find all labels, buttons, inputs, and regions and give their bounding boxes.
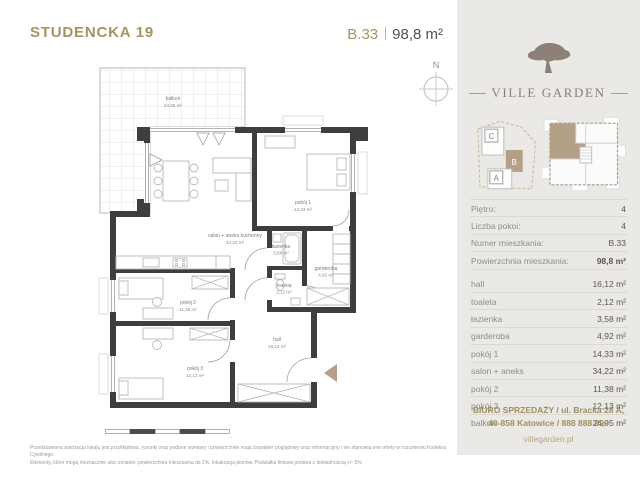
scale-segment — [205, 429, 230, 434]
room-area-pokoj3: 12,13 m² — [186, 373, 205, 378]
scale-segment — [180, 429, 205, 434]
room-area-pokoj2: 11,38 m² — [179, 307, 197, 312]
room-label-salon: salon + aneks kuchenny — [208, 233, 262, 239]
info-label: Numer mieszkania: — [471, 238, 544, 248]
room-label-pokoj3: pokój 3 — [187, 366, 203, 372]
disclaimer-line-1: Przedstawiona aranżacja lokalu jest przy… — [30, 445, 454, 460]
room-area-pokoj1: 14,33 m² — [294, 207, 313, 212]
site-building-c-label: C — [488, 132, 494, 141]
unit-header-divider — [385, 27, 386, 40]
scale-segment — [155, 429, 180, 434]
room-area-salon: 34,22 m² — [226, 240, 245, 245]
room-label-pokoj1: pokój 1 — [295, 200, 311, 206]
compass-icon — [418, 71, 454, 107]
room-row: hall 16,12 m² — [470, 276, 627, 293]
room-row: salon + aneks 34,22 m² — [470, 363, 627, 380]
unit-area: 98,8 m² — [392, 26, 443, 43]
compass-north-label: N — [418, 60, 454, 70]
unit-details: Piętro: 4 Liczba pokoi: 4 Numer mieszkan… — [470, 199, 627, 431]
unit-number: B.33 — [347, 26, 378, 43]
info-value: B.33 — [609, 238, 627, 248]
floor-plan: balkon 24,95 m² salon + aneks kuchenny 3… — [85, 58, 385, 428]
room-row-value: 4,92 m² — [597, 331, 626, 341]
brand-logo: VILLE GARDEN — [457, 0, 640, 101]
room-row-label: łazienka — [471, 314, 502, 324]
room-row-label: salon + aneks — [471, 366, 524, 376]
site-building-a-label: A — [494, 174, 500, 183]
room-row-label: hall — [471, 279, 484, 289]
brand-rule-left — [469, 93, 486, 94]
room-row-value: 3,58 m² — [597, 314, 626, 324]
room-row: łazienka 3,58 m² — [470, 310, 627, 327]
info-row: Powierzchnia mieszkania: 98,8 m² — [470, 252, 627, 269]
room-label-toaleta: toaleta — [276, 283, 291, 289]
scale-segment — [105, 429, 130, 434]
info-value: 4 — [621, 204, 626, 214]
room-row-label: garderoba — [471, 331, 510, 341]
room-row-value: 34,22 m² — [592, 366, 626, 376]
apartment-card-page: STUDENCKA 19 B.3398,8 m² N — [0, 0, 640, 480]
info-row: Piętro: 4 — [470, 200, 627, 217]
room-row: pokój 1 14,33 m² — [470, 345, 627, 362]
room-label-balkon: balkon — [166, 96, 181, 102]
room-label-lazienka: łazienka — [272, 244, 291, 250]
unit-info-table: Piętro: 4 Liczba pokoi: 4 Numer mieszkan… — [470, 199, 627, 270]
brand-name: VILLE GARDEN — [486, 85, 610, 101]
site-building-b-label: B — [512, 158, 517, 167]
brand-rule-right — [611, 93, 628, 94]
room-row-value: 16,12 m² — [592, 279, 626, 289]
website-link[interactable]: villegarden.pl — [457, 434, 640, 444]
room-row-value: 11,38 m² — [593, 384, 626, 394]
info-row: Liczba pokoi: 4 — [470, 217, 627, 234]
room-row: garderoba 4,92 m² — [470, 328, 627, 345]
scale-segment — [130, 429, 155, 434]
contact-address-line-1: BIURO SPRZEDAŻY / ul. Bracka 28 A, — [457, 404, 640, 416]
info-row: Numer mieszkania: B.33 — [470, 235, 627, 252]
brand-row: VILLE GARDEN — [469, 85, 628, 101]
room-area-toaleta: 2,12 m² — [276, 290, 292, 295]
room-row: pokój 2 11,38 m² — [470, 380, 627, 397]
room-label-hall: hall — [273, 337, 281, 343]
room-area-hall: 16,12 m² — [268, 344, 287, 349]
contact-address-line-2: 40-858 Katowice / 888 888 890 — [457, 417, 640, 429]
room-label-garderoba: garderoba — [315, 266, 338, 272]
room-row: toaleta 2,12 m² — [470, 293, 627, 310]
disclaimer: Przedstawiona aranżacja lokalu jest przy… — [30, 445, 454, 467]
floor-location-diagram — [542, 117, 627, 193]
room-row-label: toaleta — [471, 297, 497, 307]
room-area-balkon: 24,95 m² — [164, 103, 183, 108]
room-row-label: pokój 1 — [471, 349, 498, 359]
room-row-value: 2,12 m² — [597, 297, 626, 307]
room-label-pokoj2: pokój 2 — [180, 300, 196, 306]
site-plan-diagram: C B A — [470, 117, 542, 193]
scale-bar — [105, 429, 230, 434]
sales-office-contact: BIURO SPRZEDAŻY / ul. Bracka 28 A, 40-85… — [457, 404, 640, 444]
room-area-garderoba: 4,92 m² — [318, 273, 334, 278]
info-value: 4 — [621, 221, 626, 231]
entrance-arrow-icon — [324, 364, 337, 382]
info-label: Liczba pokoi: — [471, 221, 521, 231]
info-label: Powierzchnia mieszkania: — [471, 256, 569, 266]
disclaimer-line-2: Elementy, które mogą nieznacznie ulec zm… — [30, 460, 454, 467]
tree-logo-icon — [525, 42, 573, 76]
info-label: Piętro: — [471, 204, 496, 214]
compass: N — [418, 60, 454, 112]
project-title: STUDENCKA 19 — [30, 24, 154, 41]
room-row-value: 14,33 m² — [592, 349, 626, 359]
info-value: 98,8 m² — [597, 256, 626, 266]
location-diagrams: C B A — [457, 101, 640, 197]
sidebar: VILLE GARDEN C B A — [457, 0, 640, 455]
room-area-lazienka: 3,58 m² — [273, 251, 289, 256]
room-row-label: pokój 2 — [471, 384, 498, 394]
unit-header: B.3398,8 m² — [347, 26, 443, 43]
